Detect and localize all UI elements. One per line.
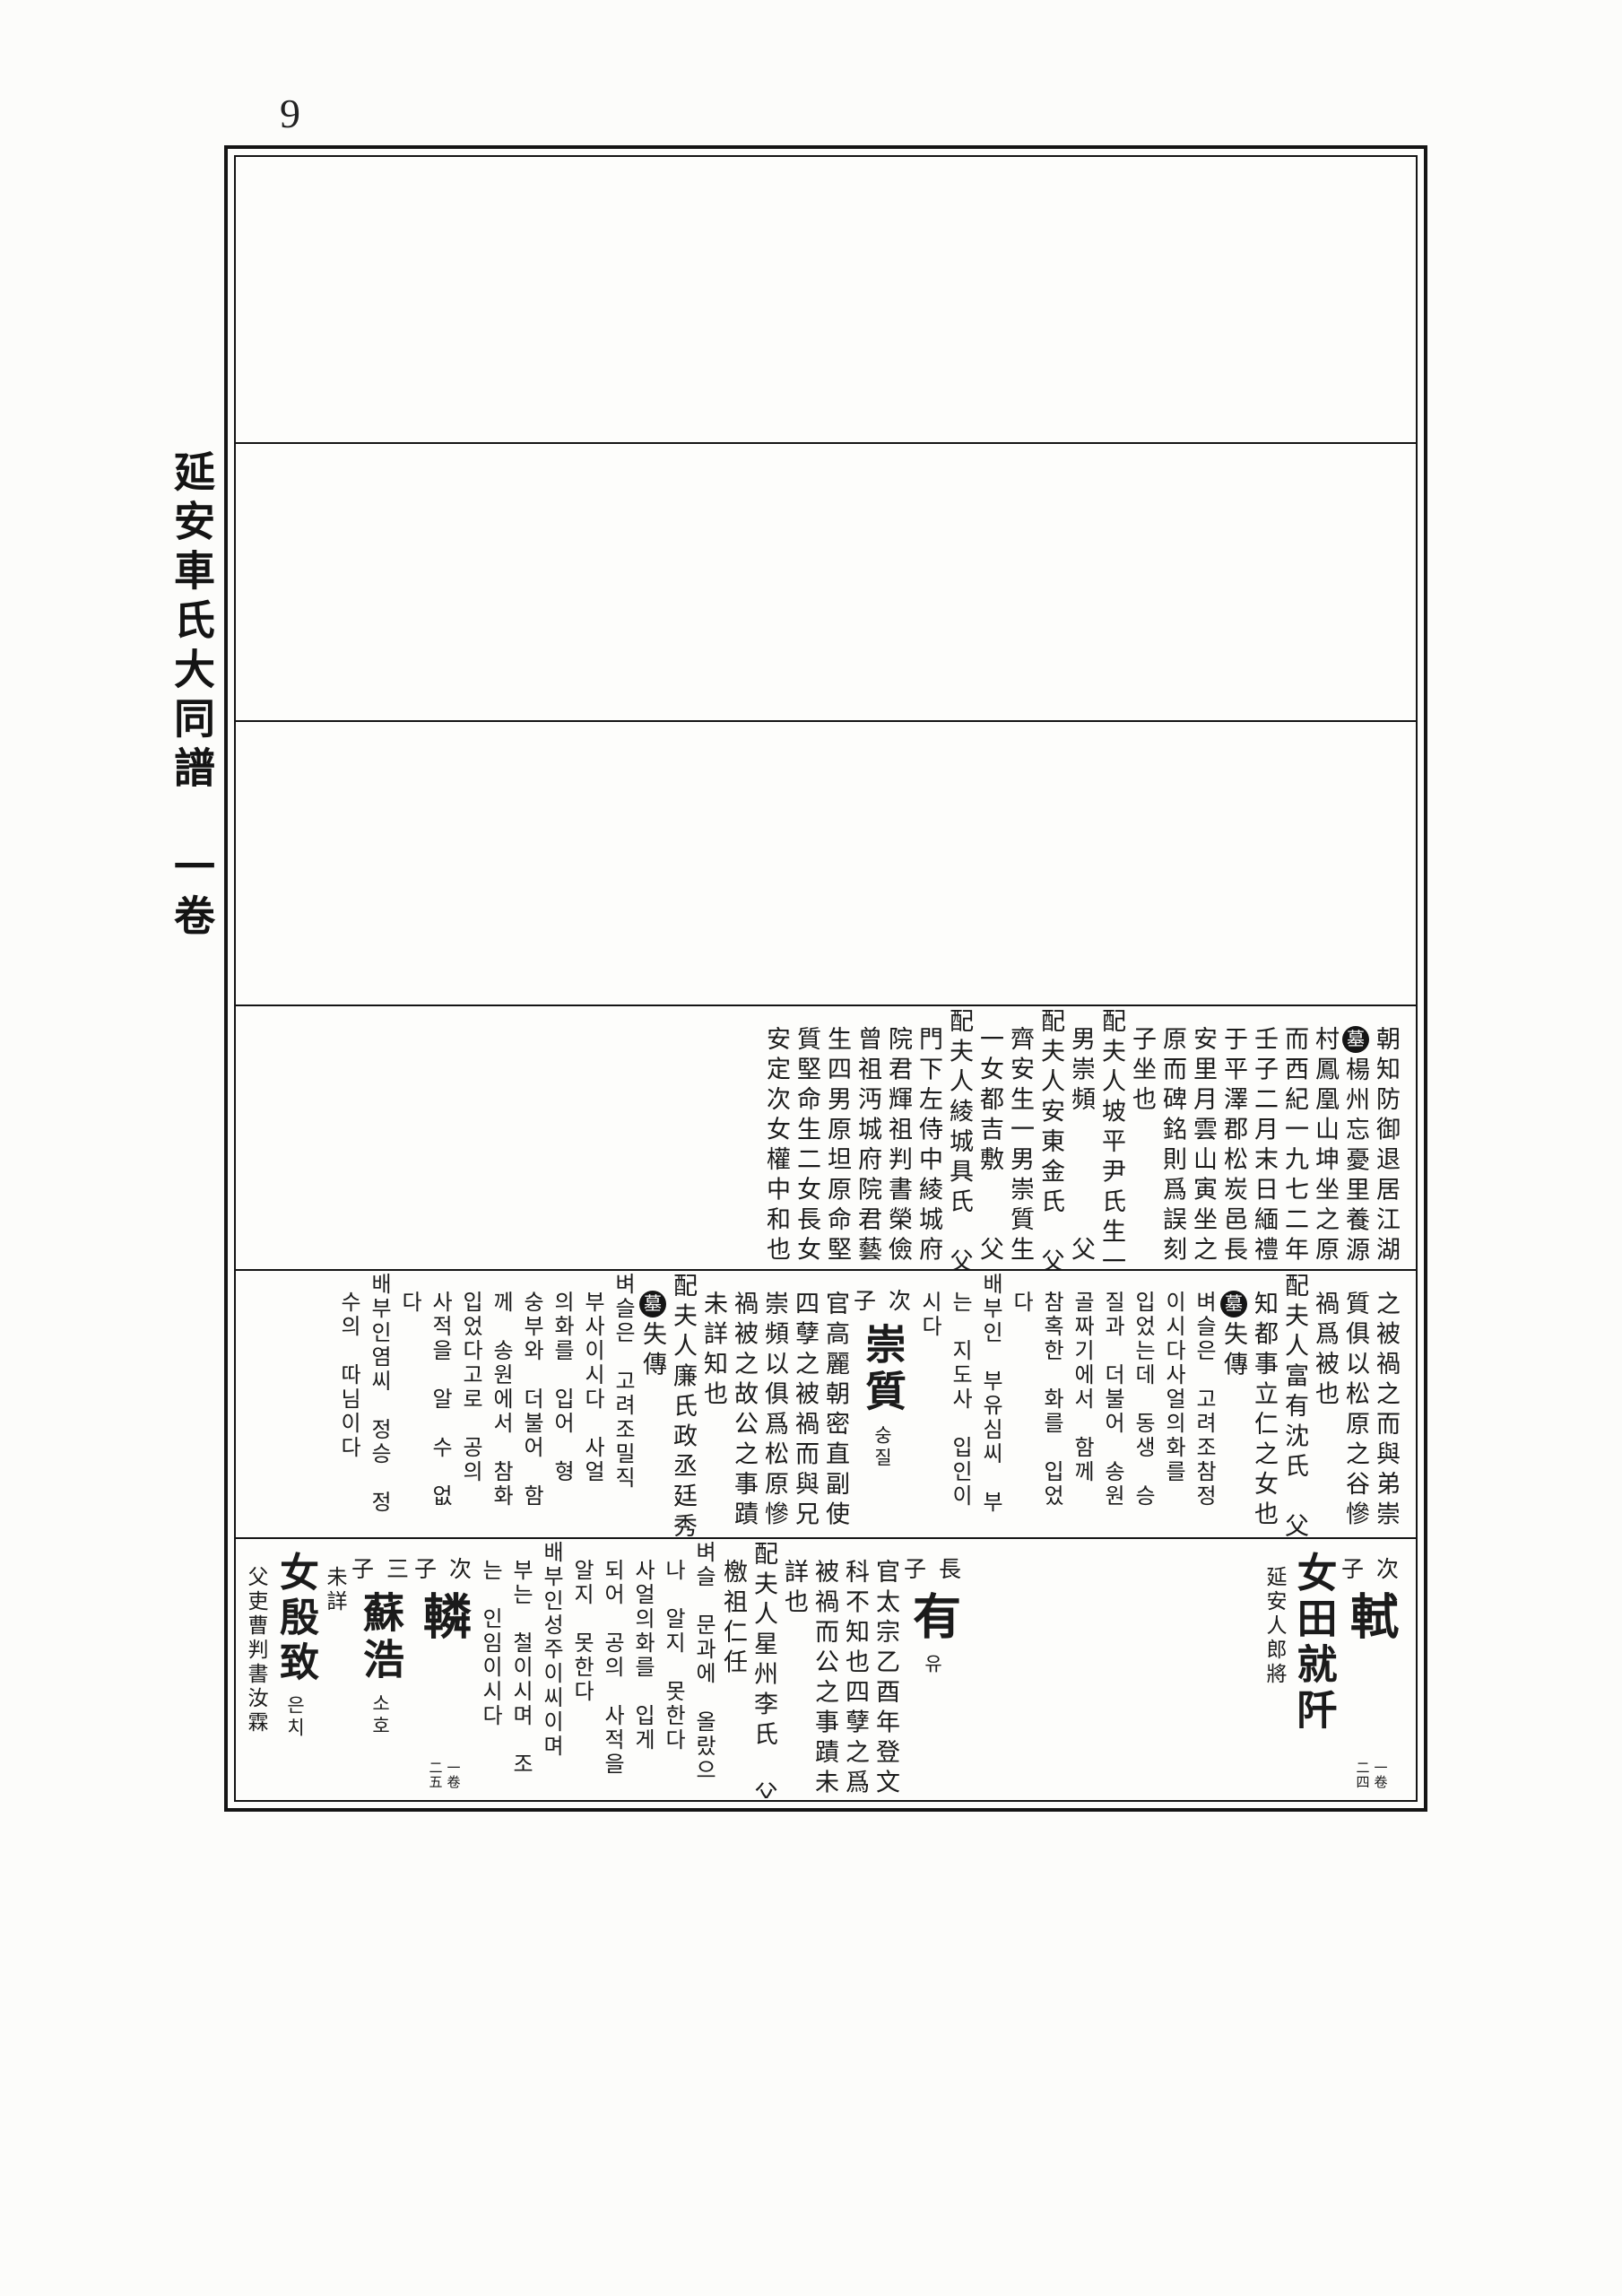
grave-marker-icon: 墓 bbox=[1342, 1026, 1369, 1053]
column-text: 質俱以松原之谷慘 bbox=[1340, 1291, 1371, 1531]
text-column: 院君輝祖判書榮儉 bbox=[883, 1026, 914, 1266]
person-entry: 女殷致은치 bbox=[270, 1552, 320, 1795]
text-column: 質俱以松原之谷慘 bbox=[1340, 1291, 1371, 1531]
column-text: 被禍而公之事蹟未 bbox=[810, 1559, 840, 1798]
text-column: 質堅命生二女長女 bbox=[792, 1026, 822, 1266]
column-text: 알지 못한다 bbox=[566, 1559, 596, 1704]
text-column: 配夫人坡平尹氏生一 bbox=[1097, 1008, 1127, 1271]
text-column: 安定次女權中和也 bbox=[761, 1026, 792, 1266]
column-text: 失傳 bbox=[638, 1321, 668, 1381]
genealogy-table: 朝知防御退居江湖墓楊州忘憂里養源村鳳凰山坤坐之原而西紀一九七二年壬子二月末日緬禮… bbox=[234, 155, 1418, 1802]
column-text: 배부인 부유심씨 부 bbox=[975, 1273, 1005, 1515]
text-column: 배부인염씨 정승 정 bbox=[363, 1273, 394, 1515]
text-column: 골짜기에서 함께 bbox=[1066, 1291, 1097, 1484]
column-text: 之被禍之而與弟崇 bbox=[1371, 1291, 1401, 1531]
text-column: 부사이시다 사얼 bbox=[577, 1291, 607, 1484]
text-column: 朝知防御退居江湖 bbox=[1371, 1026, 1401, 1266]
person-name: 軾 bbox=[1335, 1591, 1406, 1645]
volume-page-ref-column: 二四 bbox=[1354, 1761, 1369, 1789]
grave-marker-icon: 墓 bbox=[1220, 1291, 1247, 1318]
column-text: 配夫人星州李氏 父 bbox=[749, 1541, 779, 1798]
text-column: 官高麗朝密直副使 bbox=[820, 1291, 851, 1531]
text-column: 禍爲被也 bbox=[1310, 1291, 1340, 1411]
relation-label: 次子 bbox=[402, 1552, 484, 1584]
text-column: 未詳知也 bbox=[698, 1291, 729, 1411]
text-column: 一女都吉敷 父 bbox=[975, 1026, 1005, 1266]
volume-page-ref-column: 一卷 bbox=[445, 1761, 460, 1789]
column-text: 楊州忘憂里養源 bbox=[1340, 1057, 1371, 1267]
column-text: 安定次女權中和也 bbox=[761, 1026, 792, 1266]
text-column: 檄祖仁任 bbox=[718, 1559, 749, 1679]
text-column: 수의 따님이다 bbox=[333, 1291, 363, 1460]
column-text: 科不知也四孽之爲 bbox=[840, 1559, 871, 1798]
text-column: 齊安生一男崇質生 bbox=[1005, 1026, 1036, 1266]
text-column: 配夫人星州李氏 父 bbox=[749, 1541, 779, 1798]
text-column: 于平澤郡松炭邑長 bbox=[1219, 1026, 1249, 1266]
table-row-6: 次子軾一卷二四女田就阡延安人郎將長子有유官太宗乙酉年登文科不知也四孽之爲被禍而公… bbox=[236, 1539, 1416, 1798]
text-column: 被禍而公之事蹟未 bbox=[810, 1559, 840, 1798]
column-text: 官高麗朝密直副使 bbox=[820, 1291, 851, 1531]
column-text: 院君輝祖判書榮儉 bbox=[883, 1026, 914, 1266]
text-column: 다 bbox=[1005, 1291, 1036, 1315]
text-column: 男崇頻 父 bbox=[1066, 1026, 1097, 1266]
hangul-reading: 유 bbox=[919, 1654, 946, 1676]
column-text: 齊安生一男崇質生 bbox=[1005, 1026, 1036, 1266]
text-column: 安里月雲山寅坐之 bbox=[1188, 1026, 1219, 1266]
text-column: 村鳳凰山坤坐之原 bbox=[1310, 1026, 1340, 1266]
column-text: 사적을 알 수 없 bbox=[424, 1291, 455, 1509]
text-column: 사적을 알 수 없 bbox=[424, 1291, 455, 1509]
column-text: 門下左侍中綾城府 bbox=[914, 1026, 944, 1266]
text-column: 曾祖沔城府院君藝 bbox=[853, 1026, 883, 1266]
column-text: 질과 더불어 송원 bbox=[1097, 1291, 1127, 1509]
person-entry: 次子軾一卷二四 bbox=[1339, 1552, 1401, 1795]
column-text: 生四男原坦原命堅 bbox=[822, 1026, 853, 1266]
column-text: 詳也 bbox=[779, 1559, 810, 1619]
text-column: 知都事立仁之女也 bbox=[1249, 1291, 1279, 1531]
text-column: 이시다사얼의화를 bbox=[1158, 1291, 1188, 1484]
text-column: 부는 철이시며 조 bbox=[505, 1559, 535, 1777]
column-text: 사얼의화를 입게 bbox=[627, 1559, 657, 1752]
column-text: 禍爲被也 bbox=[1310, 1291, 1340, 1411]
table-row-5: 之被禍之而與弟崇質俱以松原之谷慘禍爲被也配夫人富有沈氏 父知都事立仁之女也墓失傳… bbox=[236, 1271, 1416, 1539]
column-text: 壬子二月末日緬禮 bbox=[1249, 1026, 1279, 1266]
text-column: 配夫人富有沈氏 父 bbox=[1279, 1273, 1310, 1539]
text-column: 께 송원에서 참화 bbox=[485, 1291, 516, 1509]
column-text: 村鳳凰山坤坐之原 bbox=[1310, 1026, 1340, 1266]
person-entry: 女田就阡 bbox=[1288, 1552, 1339, 1795]
text-column: 生四男原坦原命堅 bbox=[822, 1026, 853, 1266]
column-text: 입었는데 동생 승 bbox=[1127, 1291, 1158, 1509]
column-text: 벼슬 문과에 올랐으 bbox=[688, 1541, 718, 1783]
column-text: 禍被之故公之事蹟 bbox=[729, 1291, 759, 1531]
text-column: 墓楊州忘憂里養源 bbox=[1340, 1026, 1371, 1267]
column-text: 朝知防御退居江湖 bbox=[1371, 1026, 1401, 1266]
text-column: 배부인 부유심씨 부 bbox=[975, 1273, 1005, 1515]
person-name: 崇質 bbox=[853, 1323, 912, 1416]
column-text: 配夫人坡平尹氏生一 bbox=[1097, 1008, 1127, 1271]
column-text: 檄祖仁任 bbox=[718, 1559, 749, 1679]
text-column: 는 인임이시다 bbox=[474, 1559, 505, 1728]
grave-marker-icon: 墓 bbox=[639, 1291, 666, 1318]
column-text: 되어 공의 사적을 bbox=[596, 1559, 627, 1777]
column-text: 配夫人綾城具氏 父 bbox=[944, 1008, 975, 1271]
table-row-2 bbox=[236, 444, 1416, 722]
column-text: 配夫人富有沈氏 父 bbox=[1279, 1273, 1310, 1539]
book-side-title: 延安車氏大同譜 一卷 bbox=[161, 450, 221, 944]
text-column: 原而碑銘則爲誤刻 bbox=[1158, 1026, 1188, 1266]
person-name: 有 bbox=[898, 1591, 968, 1645]
column-text: 숭부와 더불어 함 bbox=[516, 1291, 546, 1509]
column-text: 입었다고로 공의 bbox=[455, 1291, 485, 1484]
text-column: 참혹한 화를 입었 bbox=[1036, 1291, 1066, 1509]
text-column: 配夫人安東金氏 父 bbox=[1036, 1008, 1066, 1271]
column-text: 는 지도사 입인이 bbox=[944, 1291, 975, 1509]
text-column: 而西紀一九七二年 bbox=[1279, 1026, 1310, 1266]
text-column: 되어 공의 사적을 bbox=[596, 1559, 627, 1777]
text-column: 門下左侍中綾城府 bbox=[914, 1026, 944, 1266]
column-text: 나 알지 못한다 bbox=[657, 1559, 688, 1752]
column-text: 原而碑銘則爲誤刻 bbox=[1158, 1026, 1188, 1266]
text-column: 는 지도사 입인이 bbox=[944, 1291, 975, 1509]
column-text: 다 bbox=[394, 1291, 424, 1315]
column-text: 未詳知也 bbox=[698, 1291, 729, 1411]
text-column: 배부인성주이씨이며 bbox=[535, 1541, 566, 1759]
column-text: 知都事立仁之女也 bbox=[1249, 1291, 1279, 1531]
column-text: 는 인임이시다 bbox=[474, 1559, 505, 1728]
relation-label: 次子 bbox=[1329, 1552, 1411, 1584]
hangul-reading: 소호 bbox=[367, 1693, 394, 1738]
text-column: 숭부와 더불어 함 bbox=[516, 1291, 546, 1509]
column-text: 配夫人安東金氏 父 bbox=[1036, 1008, 1066, 1271]
text-column: 墓失傳 bbox=[638, 1291, 668, 1381]
volume-page-ref: 一卷二四 bbox=[1354, 1761, 1387, 1795]
text-column: 알지 못한다 bbox=[566, 1559, 596, 1704]
column-text: 부사이시다 사얼 bbox=[577, 1291, 607, 1484]
person-entry: 三子蘇浩소호 bbox=[349, 1552, 412, 1795]
text-column: 입었는데 동생 승 bbox=[1127, 1291, 1158, 1509]
text-column: 사얼의화를 입게 bbox=[627, 1559, 657, 1752]
column-text: 다 bbox=[1005, 1291, 1036, 1315]
person-name: 女殷致 bbox=[266, 1552, 324, 1686]
person-name: 轔 bbox=[408, 1591, 479, 1645]
hangul-reading: 숭질 bbox=[869, 1425, 896, 1470]
column-text: 質堅命生二女長女 bbox=[792, 1026, 822, 1266]
volume-page-ref: 一卷二五 bbox=[427, 1761, 460, 1795]
column-text: 配夫人廉氏政丞廷秀 bbox=[668, 1273, 698, 1539]
column-text: 골짜기에서 함께 bbox=[1066, 1291, 1097, 1484]
volume-page-ref-column: 二五 bbox=[427, 1761, 442, 1789]
text-column: 配夫人廉氏政丞廷秀 bbox=[668, 1273, 698, 1539]
column-text: 수의 따님이다 bbox=[333, 1291, 363, 1460]
column-text: 이시다사얼의화를 bbox=[1158, 1291, 1188, 1484]
column-text: 벼슬은 고려조참정 bbox=[1188, 1291, 1219, 1509]
column-text: 벼슬은 고려조밀직 bbox=[607, 1273, 638, 1491]
column-text: 四孽之被禍而與兄 bbox=[790, 1291, 820, 1531]
column-text: 子坐也 bbox=[1127, 1026, 1158, 1117]
column-text: 배부인염씨 정승 정 bbox=[363, 1273, 394, 1515]
table-row-4: 朝知防御退居江湖墓楊州忘憂里養源村鳳凰山坤坐之原而西紀一九七二年壬子二月末日緬禮… bbox=[236, 1006, 1416, 1271]
text-column: 科不知也四孽之爲 bbox=[840, 1559, 871, 1798]
column-text: 崇頻以俱爲松原慘 bbox=[759, 1291, 790, 1531]
hangul-reading: 은치 bbox=[282, 1695, 308, 1740]
person-entry: 次子轔一卷二五 bbox=[412, 1552, 474, 1795]
table-row-1 bbox=[236, 157, 1416, 444]
text-column: 配夫人綾城具氏 父 bbox=[944, 1008, 975, 1271]
text-column: 崇頻以俱爲松原慘 bbox=[759, 1291, 790, 1531]
column-text: 의화를 입어 형 bbox=[546, 1291, 577, 1484]
table-row-3 bbox=[236, 722, 1416, 1006]
text-column: 벼슬 문과에 올랐으 bbox=[688, 1541, 718, 1783]
page-number: 9 bbox=[280, 90, 302, 137]
column-text: 而西紀一九七二年 bbox=[1279, 1026, 1310, 1266]
text-column: 禍被之故公之事蹟 bbox=[729, 1291, 759, 1531]
text-column: 입었다고로 공의 bbox=[455, 1291, 485, 1484]
text-column: 시다 bbox=[914, 1291, 944, 1339]
person-entry: 長子有유 bbox=[901, 1552, 964, 1795]
column-text: 부는 철이시며 조 bbox=[505, 1559, 535, 1777]
text-column: 의화를 입어 형 bbox=[546, 1291, 577, 1484]
relation-label: 長子 bbox=[891, 1552, 974, 1584]
text-column: 벼슬은 고려조밀직 bbox=[607, 1273, 638, 1491]
text-column: 나 알지 못한다 bbox=[657, 1559, 688, 1752]
empty-space bbox=[964, 1539, 1260, 1548]
text-column: 벼슬은 고려조참정 bbox=[1188, 1291, 1219, 1509]
text-column: 壬子二月末日緬禮 bbox=[1249, 1026, 1279, 1266]
volume-page-ref-column: 一卷 bbox=[1372, 1761, 1387, 1789]
column-text: 시다 bbox=[914, 1291, 944, 1339]
text-column: 子坐也 bbox=[1127, 1026, 1158, 1117]
text-column: 詳也 bbox=[779, 1559, 810, 1619]
column-text: 安里月雲山寅坐之 bbox=[1188, 1026, 1219, 1266]
column-text: 于平澤郡松炭邑長 bbox=[1219, 1026, 1249, 1266]
relation-label: 次子 bbox=[841, 1283, 924, 1316]
text-column: 之被禍之而與弟崇 bbox=[1371, 1291, 1401, 1531]
column-text: 失傳 bbox=[1219, 1321, 1249, 1381]
genealogy-table-frame: 朝知防御退居江湖墓楊州忘憂里養源村鳳凰山坤坐之原而西紀一九七二年壬子二月末日緬禮… bbox=[224, 145, 1427, 1812]
person-name: 蘇浩 bbox=[351, 1591, 410, 1684]
column-text: 一女都吉敷 父 bbox=[975, 1026, 1005, 1266]
column-text: 배부인성주이씨이며 bbox=[535, 1541, 566, 1759]
column-text: 참혹한 화를 입었 bbox=[1036, 1291, 1066, 1509]
column-text: 께 송원에서 참화 bbox=[485, 1291, 516, 1509]
text-column: 질과 더불어 송원 bbox=[1097, 1291, 1127, 1509]
text-column: 다 bbox=[394, 1291, 424, 1315]
column-text: 男崇頻 父 bbox=[1066, 1026, 1097, 1266]
person-entry: 次子崇質숭질 bbox=[851, 1283, 914, 1534]
column-text: 曾祖沔城府院君藝 bbox=[853, 1026, 883, 1266]
text-column: 墓失傳 bbox=[1219, 1291, 1249, 1381]
text-column: 四孽之被禍而與兄 bbox=[790, 1291, 820, 1531]
